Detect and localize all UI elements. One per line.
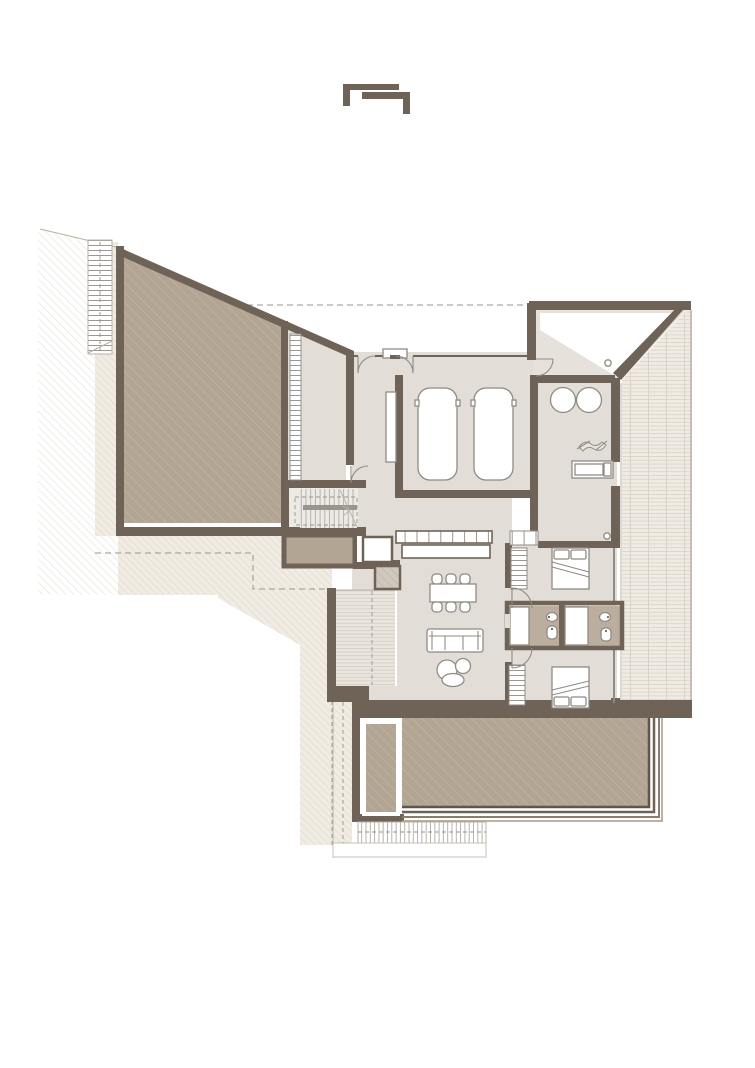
exterior-stair-west <box>88 240 112 354</box>
interlocking-brackets-logo <box>343 84 410 114</box>
column-hall <box>604 533 610 539</box>
kitchen-cabinets <box>396 531 492 543</box>
washer <box>551 388 576 413</box>
shower-west <box>510 607 529 645</box>
carport-closet <box>386 392 396 462</box>
chimney <box>375 566 400 589</box>
pool-ramp <box>362 718 662 821</box>
dryer <box>577 388 602 413</box>
bed-south <box>552 667 589 708</box>
fireplace <box>357 536 392 562</box>
storeroom-shelf <box>290 334 301 480</box>
wardrobe-top <box>510 531 538 545</box>
wardrobe-south <box>509 665 525 705</box>
dining-table <box>430 584 476 602</box>
car-2 <box>474 388 513 480</box>
floor-plan-drawing <box>0 0 755 1068</box>
workbench <box>572 461 613 478</box>
bed-north <box>552 548 589 589</box>
car-1 <box>418 388 457 480</box>
kitchen <box>396 531 492 558</box>
west-deck <box>336 590 398 686</box>
column-entry <box>605 360 611 366</box>
interior-stair <box>295 489 357 528</box>
east-terrace <box>621 310 692 705</box>
floor-plan-sheet <box>0 0 755 1068</box>
kitchen-island <box>402 545 490 558</box>
bathroom-band <box>505 603 622 649</box>
dining-set <box>430 574 476 612</box>
garage-volume <box>124 256 283 523</box>
shower-mid <box>565 607 588 645</box>
sofa <box>427 629 483 652</box>
storage-room <box>284 535 355 566</box>
wardrobe-north <box>511 548 527 589</box>
